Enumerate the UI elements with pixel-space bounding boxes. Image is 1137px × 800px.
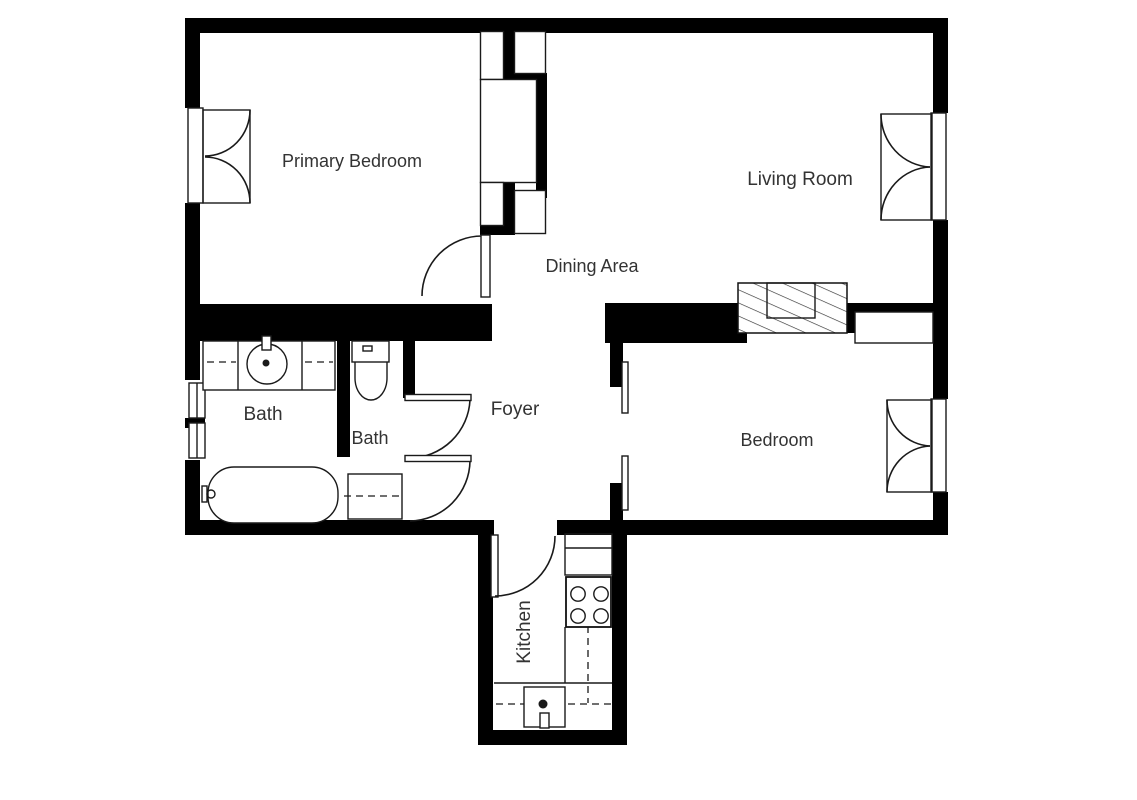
toilet bbox=[352, 341, 389, 400]
tub-faucet bbox=[202, 486, 207, 502]
room-label-bedroom: Bedroom bbox=[740, 430, 813, 450]
room-label-foyer: Foyer bbox=[491, 399, 540, 420]
stove-4-burner bbox=[566, 577, 611, 627]
floor-plan-page: Primary Bedroom Living Room Dining Area … bbox=[0, 0, 1137, 800]
bedroom-wall-closet bbox=[855, 312, 933, 343]
bedroom-window bbox=[887, 399, 946, 492]
room-label-dining-area: Dining Area bbox=[545, 256, 639, 276]
kitchen-sink bbox=[524, 687, 565, 728]
living-room-window bbox=[881, 113, 946, 220]
room-label-living-room: Living Room bbox=[747, 169, 853, 190]
bedroom-sliding-door bbox=[622, 362, 628, 510]
sink-drain bbox=[539, 700, 548, 709]
hatched-storage-unit bbox=[738, 283, 847, 333]
basin-drain bbox=[263, 360, 270, 367]
bath-second-door bbox=[405, 395, 471, 459]
room-label-bath-second: Bath bbox=[351, 428, 388, 448]
floor-plan-drawing: Primary Bedroom Living Room Dining Area … bbox=[0, 0, 1137, 800]
bathtub bbox=[202, 467, 338, 523]
kitchen-fixtures bbox=[494, 534, 612, 728]
primary-bedroom-door bbox=[422, 235, 490, 297]
room-label-kitchen: Kitchen bbox=[514, 600, 535, 663]
shower-stall bbox=[344, 474, 402, 519]
kitchen-upper-cabinets bbox=[565, 534, 612, 575]
room-label-bath-main: Bath bbox=[243, 404, 282, 425]
vanity-counter bbox=[203, 336, 335, 390]
bath-main-door bbox=[405, 456, 471, 522]
kitchen-door bbox=[491, 535, 555, 597]
basin-faucet bbox=[262, 336, 271, 350]
room-label-primary-bedroom: Primary Bedroom bbox=[282, 151, 422, 171]
primary-bedroom-window bbox=[188, 108, 250, 203]
sink-faucet bbox=[540, 713, 549, 728]
